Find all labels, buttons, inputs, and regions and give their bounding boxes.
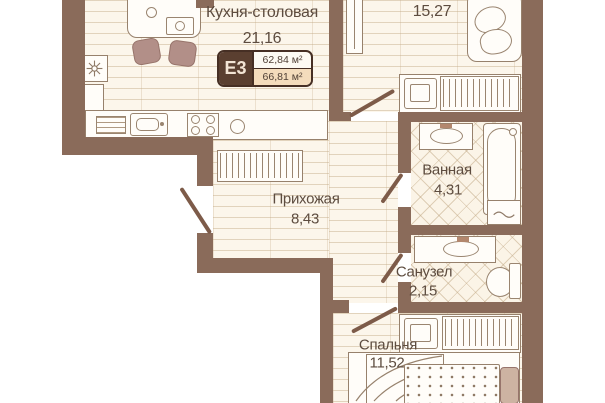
room-area-living: 15,27 (413, 3, 452, 21)
wall (329, 0, 343, 121)
burner (191, 115, 200, 124)
room-label-kitchen: Кухня-столовая (206, 4, 318, 22)
wall (62, 0, 85, 155)
apartment-type-badge: Е3 62,84 м² 66,81 м² (217, 50, 313, 87)
wall (522, 0, 543, 403)
chair-icon (167, 39, 197, 68)
room-label-hallway: Прихожая (272, 191, 339, 208)
burner (206, 115, 215, 124)
kettle-icon (230, 119, 245, 134)
room-label-bathroom: Ванная (422, 162, 472, 179)
tag (457, 237, 469, 242)
tray-icon (166, 17, 194, 35)
pillow-icon (500, 367, 519, 403)
floor-plan: Кухня-столовая 21,16 15,27 Ванная 4,31 П… (0, 0, 605, 403)
tag (440, 124, 452, 128)
ventilation-icon (81, 55, 108, 82)
hanger-lines (443, 79, 515, 107)
laundry-icon (487, 200, 521, 225)
room-area-bedroom: 11,52 (370, 355, 405, 372)
wall (411, 225, 522, 235)
basin-oval (443, 241, 479, 257)
wardrobe-icon (346, 0, 363, 54)
room-area-wc: 2,15 (409, 283, 437, 300)
dresser-icon (404, 78, 437, 109)
tub-inner (487, 128, 516, 210)
hanger-wardrobe-icon (442, 316, 519, 350)
burner (191, 126, 200, 135)
washbasin-icon (419, 123, 473, 150)
hanger-lines (220, 153, 299, 178)
badge-code: Е3 (219, 52, 254, 85)
room-area-kitchen: 21,16 (243, 30, 282, 48)
chair-icon (131, 37, 162, 66)
sink-icon (130, 113, 168, 136)
drainer-icon (96, 116, 126, 134)
sink-bowl (136, 118, 159, 131)
wall (62, 137, 213, 155)
toilet-tank (509, 263, 521, 299)
kitchen-counter (85, 110, 328, 140)
wall (398, 112, 411, 173)
wall (398, 302, 522, 313)
hanger-lines (445, 319, 515, 346)
badge-area-reduced: 66,81 м² (254, 68, 311, 85)
room-label-wc: Санузел (396, 264, 452, 281)
washbasin-icon (414, 236, 496, 263)
storage-row (399, 314, 521, 353)
cup-icon (175, 21, 185, 31)
wall (398, 207, 411, 253)
wardrobe-door-line (354, 0, 355, 49)
wall (329, 112, 351, 121)
sofa-icon (467, 0, 522, 62)
shower-icon (509, 128, 517, 136)
wall (333, 300, 349, 313)
dining-table-icon (127, 0, 201, 38)
door-swing-entrance (179, 187, 212, 234)
room-area-hallway: 8,43 (291, 211, 319, 228)
wall (398, 112, 522, 122)
wall (320, 273, 333, 403)
stove-icon (187, 113, 219, 137)
faucet-icon (160, 122, 164, 126)
wall (197, 155, 213, 186)
kettle-icon (146, 7, 157, 18)
wall (197, 258, 333, 273)
room-label-bedroom: Спальня (359, 337, 417, 354)
badge-areas: 62,84 м² 66,81 м² (254, 52, 311, 85)
basin-oval (430, 128, 463, 144)
room-area-bathroom: 4,31 (434, 182, 462, 199)
hanger-wardrobe-icon (440, 76, 519, 111)
dresser-inner (410, 84, 430, 102)
badge-area-total: 62,84 м² (254, 52, 311, 68)
burner (206, 126, 215, 135)
storage-row (399, 74, 521, 114)
duvet-icon (404, 364, 500, 403)
hanger-wardrobe-icon (217, 150, 303, 182)
